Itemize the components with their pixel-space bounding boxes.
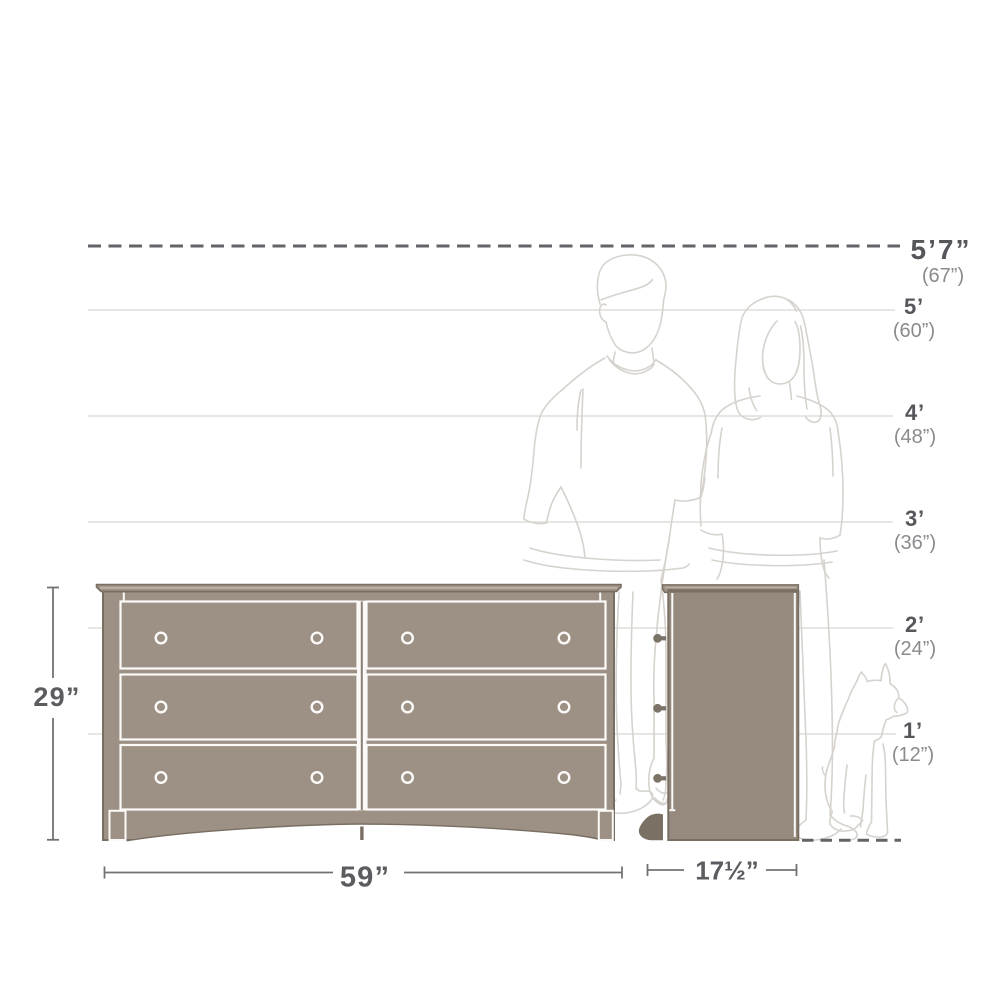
svg-text:5’7”: 5’7”: [911, 234, 972, 265]
svg-text:3’: 3’: [905, 506, 925, 531]
svg-text:(67”): (67”): [922, 265, 964, 287]
svg-text:(36”): (36”): [894, 532, 936, 554]
svg-text:29”: 29”: [33, 682, 80, 712]
svg-text:17½”: 17½”: [695, 856, 759, 886]
svg-text:(48”): (48”): [894, 426, 936, 448]
svg-text:(24”): (24”): [894, 638, 936, 660]
svg-text:4’: 4’: [905, 400, 925, 425]
svg-text:59”: 59”: [340, 862, 390, 894]
svg-text:1’: 1’: [903, 718, 923, 743]
svg-text:(60”): (60”): [893, 320, 935, 342]
svg-text:2’: 2’: [905, 612, 925, 637]
svg-text:(12”): (12”): [892, 744, 934, 766]
svg-text:5’: 5’: [904, 294, 924, 319]
